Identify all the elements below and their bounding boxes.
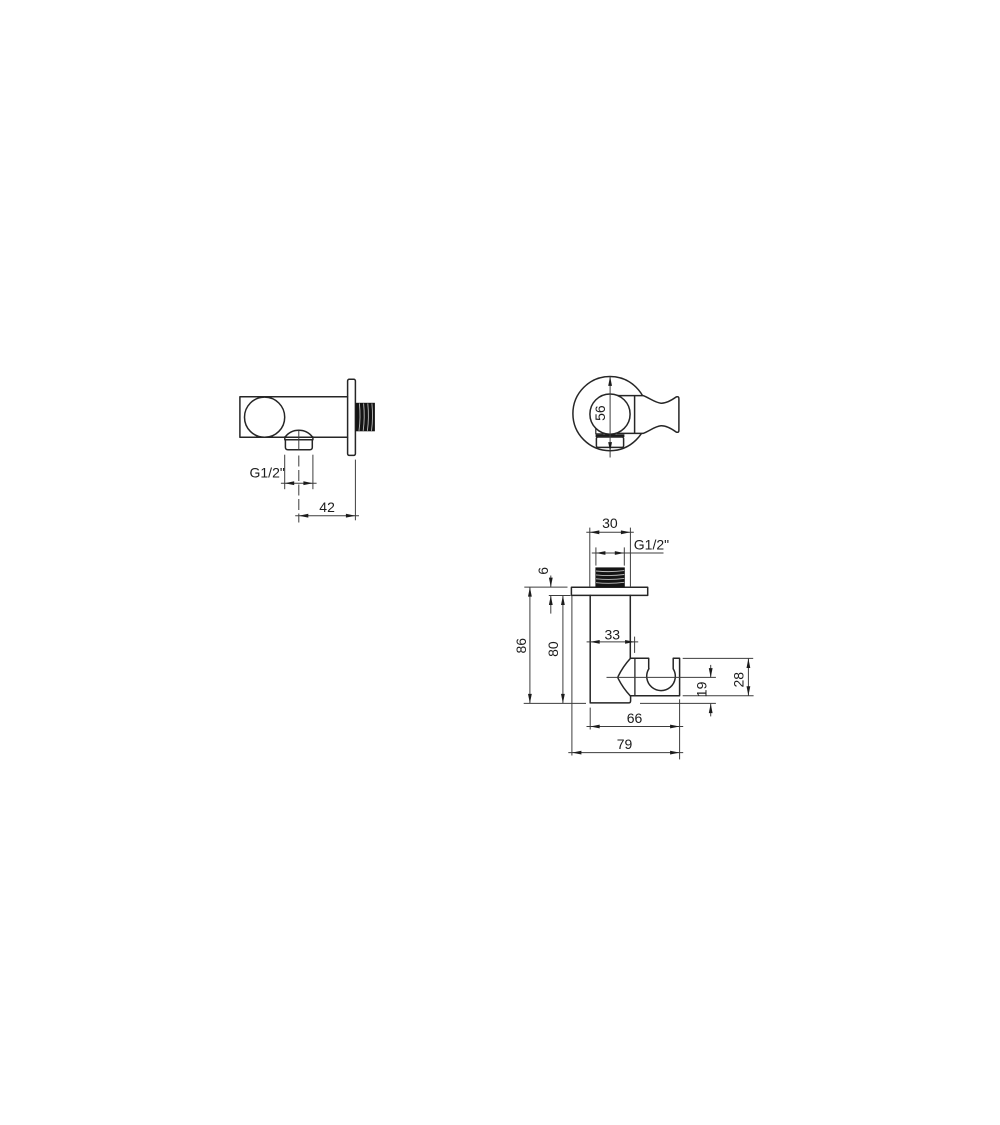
svg-text:33: 33	[605, 626, 621, 642]
svg-text:19: 19	[693, 681, 709, 697]
svg-text:42: 42	[319, 499, 335, 515]
svg-text:79: 79	[617, 736, 633, 752]
svg-text:30: 30	[602, 515, 618, 531]
svg-text:6: 6	[535, 567, 551, 575]
svg-text:80: 80	[545, 641, 561, 657]
svg-text:66: 66	[627, 710, 643, 726]
svg-text:56: 56	[592, 405, 608, 421]
svg-text:G1/2": G1/2"	[634, 537, 669, 553]
svg-text:G1/2": G1/2"	[250, 465, 285, 481]
svg-text:28: 28	[731, 672, 747, 688]
svg-text:86: 86	[513, 638, 529, 654]
